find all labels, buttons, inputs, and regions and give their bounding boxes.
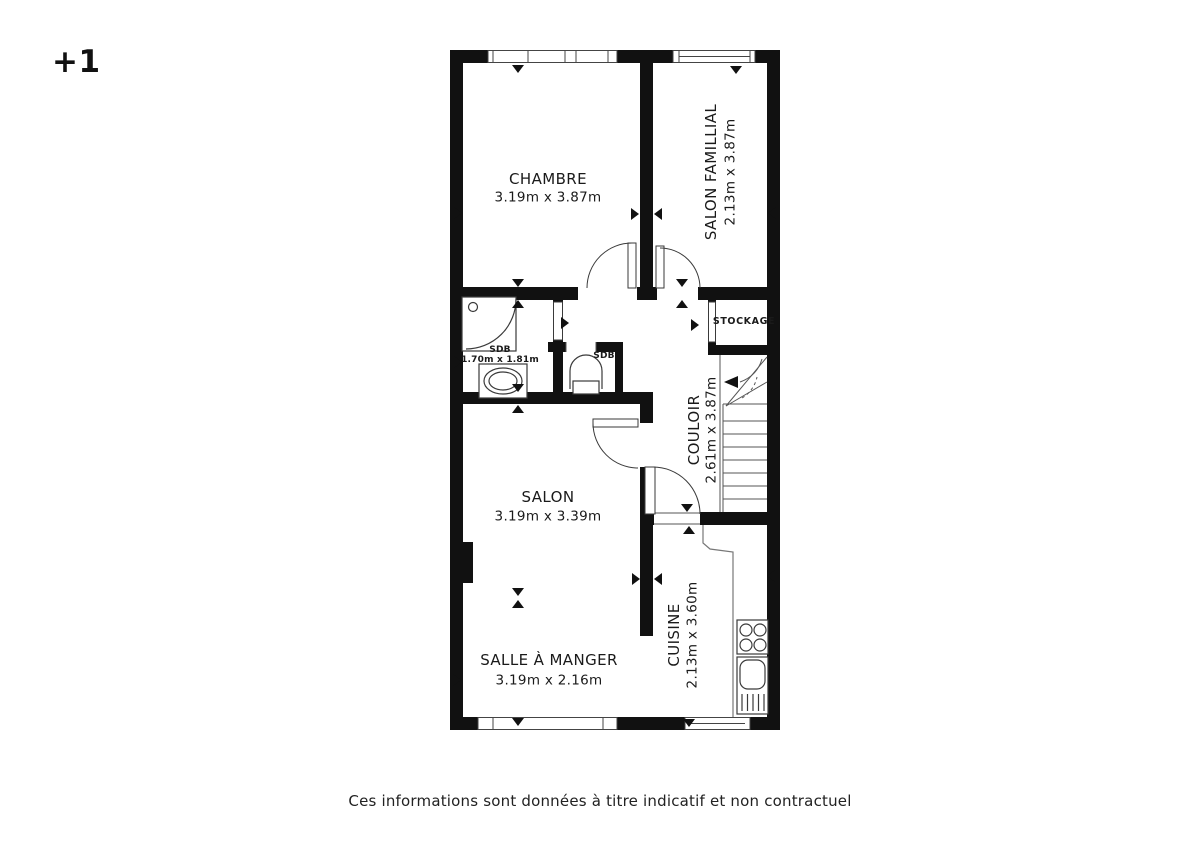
room-dims-cuisine: 2.13m x 3.60m [686,582,701,689]
door [554,243,716,514]
stairs-icon [720,355,767,512]
stove-icon [737,620,768,654]
floor-level-label: +1 [52,44,101,80]
chimney-block [460,542,473,583]
disclaimer-text: Ces informations sont données à titre in… [0,792,1200,810]
shower-icon [462,297,516,351]
room-label-salon: SALON [522,489,575,506]
door-opening [566,287,700,525]
door-frame-lines [566,342,700,524]
room-label-salle-a-manger: SALLE À MANGER [480,652,618,669]
room-label-stockage: STOCKAGE [713,317,775,327]
window [478,718,617,730]
room-dims-salon-famillial: 2.13m x 3.87m [724,119,739,226]
room-dims-couloir: 2.61m x 3.87m [705,377,720,484]
window [488,51,617,63]
room-label-couloir: COULOIR [686,395,703,466]
room-label-sdb-2: SDB [593,352,614,362]
window [673,51,755,63]
stairs-direction-arrow [724,376,738,388]
room-label-salon-famillial: SALON FAMILLIAL [703,104,720,240]
room-dims-salon: 3.19m x 3.39m [495,510,602,525]
sink-icon [479,364,527,398]
kitchen-counter [703,525,733,717]
room-label-chambre: CHAMBRE [509,171,587,188]
room-dims-sdb-1: 1.70m x 1.81m [461,356,539,366]
room-dims-salle-a-manger: 3.19m x 2.16m [496,674,603,689]
floor-plan: CHAMBRE 3.19m x 3.87m SALON FAMILLIAL 2.… [450,50,780,730]
kitchen-sink-icon [737,657,768,714]
room-label-cuisine: CUISINE [666,603,683,666]
room-dims-chambre: 3.19m x 3.87m [495,191,602,206]
